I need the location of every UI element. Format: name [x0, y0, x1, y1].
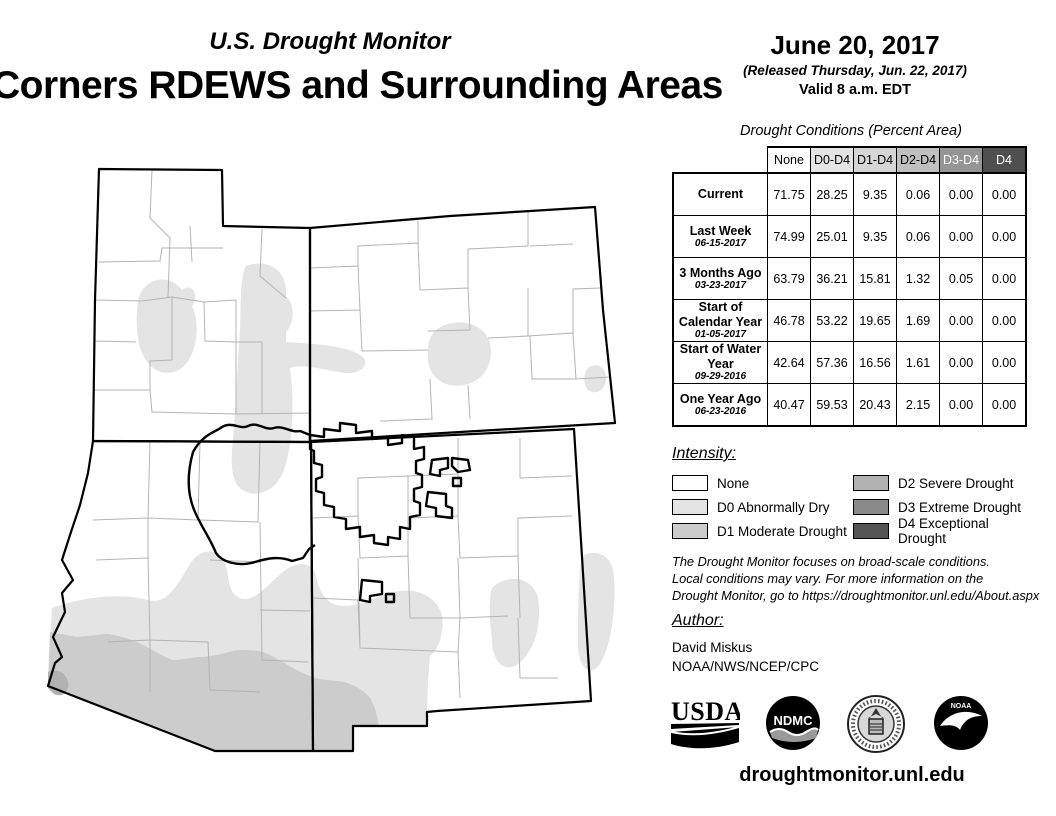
table-row: Start of Water Year09-29-2016 42.64 57.3…	[673, 342, 1026, 384]
ndmc-logo: NDMC	[764, 694, 822, 752]
author-title: Author:	[672, 612, 724, 630]
author-name: David Miskus	[672, 640, 752, 655]
released-date: (Released Thursday, Jun. 22, 2017)	[690, 63, 1020, 78]
col-header-d4: D4	[983, 147, 1027, 173]
d2-swatch	[853, 475, 889, 491]
col-header-none: None	[768, 147, 811, 173]
noaa-logo: NOAA	[932, 694, 990, 752]
commerce-seal-logo	[846, 694, 906, 754]
author-org: NOAA/NWS/NCEP/CPC	[672, 659, 819, 674]
table-header-row: None D0-D4 D1-D4 D2-D4 D3-D4 D4	[673, 147, 1026, 173]
d0-swatch	[672, 499, 708, 515]
none-swatch	[672, 475, 708, 491]
table-row: Last Week06-15-2017 74.99 25.01 9.35 0.0…	[673, 216, 1026, 258]
svg-text:NOAA: NOAA	[951, 703, 972, 710]
legend-item-d1: D1 Moderate Drought	[672, 519, 853, 543]
valid-time: Valid 8 a.m. EDT	[690, 82, 1020, 98]
col-header-d2d4: D2-D4	[897, 147, 940, 173]
drought-conditions-table: None D0-D4 D1-D4 D2-D4 D3-D4 D4 Current …	[672, 146, 1027, 427]
usda-logo: USDA	[670, 698, 740, 750]
map-date: June 20, 2017	[690, 30, 1020, 61]
d4-swatch	[853, 523, 889, 539]
d3-swatch	[853, 499, 889, 515]
table-row: Current 71.75 28.25 9.35 0.06 0.00 0.00	[673, 173, 1026, 216]
col-header-d1d4: D1-D4	[854, 147, 897, 173]
col-header-d3d4: D3-D4	[940, 147, 983, 173]
table-row: 3 Months Ago03-23-2017 63.79 36.21 15.81…	[673, 258, 1026, 300]
disclaimer-text: The Drought Monitor focuses on broad-sca…	[672, 553, 1044, 604]
legend-item-d0: D0 Abnormally Dry	[672, 495, 853, 519]
legend-item-d4: D4 Exceptional Drought	[853, 519, 1038, 543]
d1-swatch	[672, 523, 708, 539]
rdews-boundary	[189, 423, 470, 602]
logo-row: USDA NDMC NOAA	[660, 690, 1040, 758]
legend-item-none: None	[672, 471, 853, 495]
table-row: Start of Calendar Year01-05-2017 46.78 5…	[673, 300, 1026, 342]
col-header-d0d4: D0-D4	[811, 147, 854, 173]
intensity-legend: Intensity: None D0 Abnormally Dry D1 Mod…	[672, 445, 1038, 543]
footer-url: droughtmonitor.unl.edu	[672, 764, 1032, 787]
intensity-title: Intensity:	[672, 445, 1038, 463]
legend-item-d2: D2 Severe Drought	[853, 471, 1038, 495]
table-title: Drought Conditions (Percent Area)	[672, 123, 1030, 139]
table-row: One Year Ago06-23-2016 40.47 59.53 20.43…	[673, 384, 1026, 427]
svg-text:NDMC: NDMC	[774, 713, 814, 728]
map-title: Corners RDEWS and Surrounding Areas	[0, 64, 723, 108]
monitor-title: U.S. Drought Monitor	[0, 28, 660, 56]
svg-text:USDA: USDA	[671, 698, 740, 726]
table-corner-cell	[673, 147, 768, 173]
